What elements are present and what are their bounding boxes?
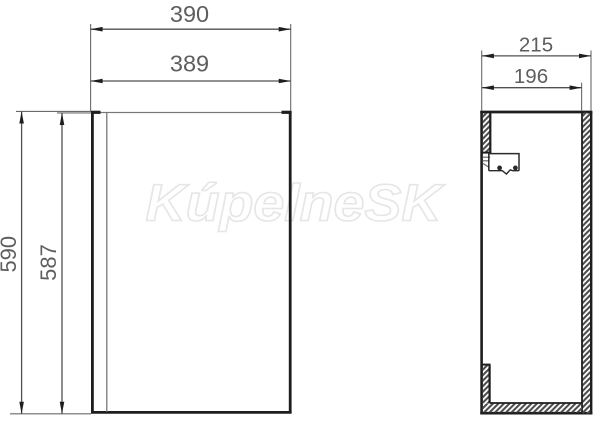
svg-text:KúpelneSK: KúpelneSK [146, 175, 446, 233]
svg-text:389: 389 [170, 51, 209, 77]
svg-text:590: 590 [0, 236, 21, 273]
svg-text:196: 196 [514, 65, 548, 88]
svg-text:587: 587 [36, 244, 61, 281]
svg-text:390: 390 [170, 1, 209, 27]
svg-text:215: 215 [519, 33, 553, 56]
